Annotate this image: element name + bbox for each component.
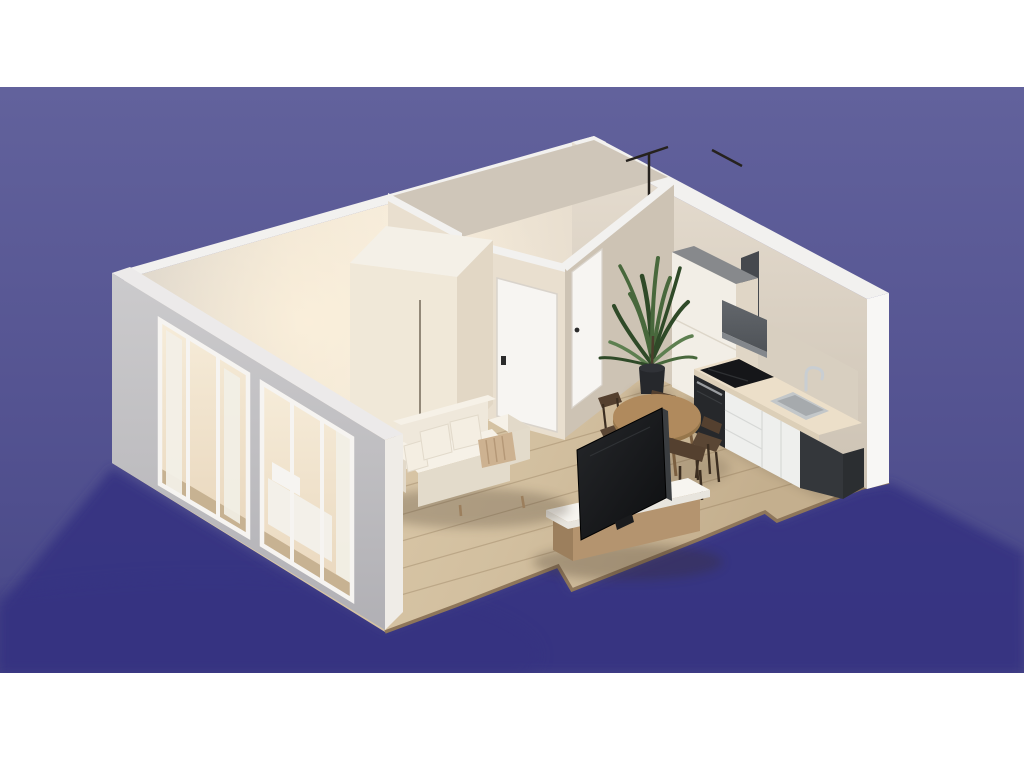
apartment-3d-scene <box>0 0 1024 768</box>
bottom-white-band <box>0 673 1024 768</box>
curtain-3 <box>336 428 352 584</box>
sofa-foot-2 <box>460 505 461 516</box>
facade-end-return <box>385 434 403 630</box>
plant-trunk <box>652 336 653 368</box>
plant-pot <box>639 364 665 395</box>
door-handle-2 <box>575 328 580 333</box>
bedroom-door <box>497 278 557 432</box>
top-white-band <box>0 0 1024 87</box>
right-wall-end-face <box>867 293 889 489</box>
curtain <box>166 330 182 498</box>
bathroom-door <box>572 249 602 408</box>
door-handle <box>501 356 506 365</box>
floorplan-render <box>0 0 1024 768</box>
curtain-2 <box>224 368 240 524</box>
